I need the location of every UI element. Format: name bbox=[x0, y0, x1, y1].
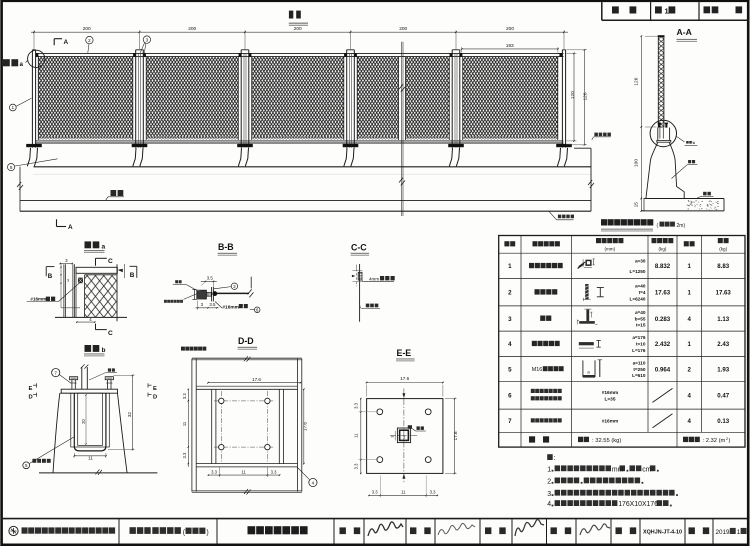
svg-text:17.63: 17.63 bbox=[716, 290, 732, 297]
svg-text:#16mm: #16mm bbox=[602, 390, 619, 396]
svg-text:2m): 2m) bbox=[677, 223, 686, 229]
svg-text:4: 4 bbox=[688, 316, 692, 323]
svg-text:1: 1 bbox=[665, 6, 669, 15]
svg-text:#16mm: #16mm bbox=[30, 297, 46, 302]
svg-text:17.6: 17.6 bbox=[302, 422, 307, 431]
svg-text:b: b bbox=[102, 347, 106, 354]
svg-text:A-A: A-A bbox=[677, 27, 692, 37]
svg-text:126: 126 bbox=[582, 92, 588, 100]
svg-text:120: 120 bbox=[570, 91, 576, 99]
svg-text:#16mm: #16mm bbox=[222, 304, 239, 310]
svg-text:t=10: t=10 bbox=[636, 342, 646, 347]
svg-text:200: 200 bbox=[188, 26, 196, 32]
svg-text:193: 193 bbox=[506, 43, 514, 49]
svg-text:200: 200 bbox=[83, 26, 91, 32]
svg-text:A: A bbox=[64, 39, 69, 46]
svg-text:11: 11 bbox=[88, 456, 93, 461]
svg-text:3.3: 3.3 bbox=[182, 393, 187, 399]
svg-text:E-E: E-E bbox=[397, 348, 412, 358]
svg-text:1: 1 bbox=[688, 341, 692, 348]
svg-text:A: A bbox=[68, 224, 73, 231]
svg-text:0.13: 0.13 bbox=[717, 418, 729, 425]
svg-text:3.3: 3.3 bbox=[353, 463, 358, 469]
svg-text:17.63: 17.63 bbox=[655, 290, 671, 297]
svg-text:b=55: b=55 bbox=[635, 316, 646, 321]
svg-text:11: 11 bbox=[353, 433, 358, 438]
svg-text:3.3: 3.3 bbox=[271, 469, 277, 474]
svg-text:D: D bbox=[153, 395, 157, 401]
svg-text:200: 200 bbox=[506, 26, 514, 32]
svg-text:2: 2 bbox=[508, 290, 512, 297]
svg-text:L=176: L=176 bbox=[632, 348, 646, 353]
svg-text:: 2.32 (m: : 2.32 (m bbox=[703, 438, 726, 444]
svg-text:a=110: a=110 bbox=[633, 360, 646, 365]
svg-text:L=35: L=35 bbox=[604, 397, 615, 403]
svg-text:t=4: t=4 bbox=[639, 290, 646, 295]
svg-text:5: 5 bbox=[508, 366, 512, 373]
svg-text:D: D bbox=[29, 395, 33, 401]
svg-text:7: 7 bbox=[508, 418, 512, 425]
svg-text:6: 6 bbox=[508, 393, 512, 400]
svg-text:t=250: t=250 bbox=[633, 367, 646, 372]
svg-text:B: B bbox=[48, 273, 53, 280]
svg-text:2: 2 bbox=[688, 366, 692, 373]
svg-text:a: a bbox=[20, 61, 24, 68]
svg-text:#16mm: #16mm bbox=[602, 419, 619, 425]
svg-text:a=40: a=40 bbox=[635, 310, 646, 315]
svg-text:4: 4 bbox=[547, 501, 551, 508]
svg-text:D-D: D-D bbox=[238, 336, 254, 346]
svg-text:32: 32 bbox=[127, 412, 132, 418]
svg-text:126: 126 bbox=[634, 77, 640, 85]
svg-text:a=30: a=30 bbox=[635, 259, 646, 264]
svg-text:3.3: 3.3 bbox=[372, 489, 378, 494]
svg-text:15: 15 bbox=[634, 202, 640, 208]
svg-text:C: C bbox=[108, 330, 113, 337]
svg-text:XQHJN-JT-4-10: XQHJN-JT-4-10 bbox=[643, 530, 682, 536]
svg-text:3.5: 3.5 bbox=[207, 275, 214, 280]
svg-text:(mm): (mm) bbox=[604, 247, 615, 252]
svg-text:(kg): (kg) bbox=[659, 247, 667, 252]
svg-text:3.3: 3.3 bbox=[430, 489, 436, 494]
svg-text:3: 3 bbox=[67, 278, 69, 282]
svg-text:L=610: L=610 bbox=[632, 373, 646, 378]
svg-text:a: a bbox=[102, 243, 106, 250]
svg-text:2019: 2019 bbox=[716, 529, 731, 536]
svg-text:t=15: t=15 bbox=[636, 323, 646, 328]
svg-text:C: C bbox=[108, 258, 113, 265]
svg-text::: : bbox=[554, 455, 556, 462]
svg-text:3.5: 3.5 bbox=[209, 302, 216, 307]
svg-text:11: 11 bbox=[241, 469, 246, 474]
svg-text:2.43: 2.43 bbox=[717, 341, 729, 348]
svg-text:8.83: 8.83 bbox=[717, 263, 729, 270]
svg-text:2: 2 bbox=[88, 38, 91, 43]
svg-text:4: 4 bbox=[312, 480, 315, 485]
svg-text:1: 1 bbox=[547, 466, 551, 473]
svg-text:0.964: 0.964 bbox=[655, 366, 671, 373]
svg-text:C-C: C-C bbox=[351, 242, 367, 252]
svg-text:17.6: 17.6 bbox=[400, 376, 409, 381]
svg-text:L=6240: L=6240 bbox=[629, 296, 645, 301]
svg-text:200: 200 bbox=[294, 26, 302, 32]
svg-text:E: E bbox=[29, 386, 33, 392]
svg-text:(kg): (kg) bbox=[719, 247, 727, 252]
svg-text:): ) bbox=[206, 530, 208, 537]
svg-text:B-B: B-B bbox=[218, 242, 234, 252]
svg-text:4: 4 bbox=[508, 341, 512, 348]
svg-text:8.832: 8.832 bbox=[655, 263, 671, 270]
svg-text:3.3: 3.3 bbox=[182, 452, 187, 458]
svg-text:17.6: 17.6 bbox=[453, 431, 458, 440]
svg-text:2: 2 bbox=[547, 479, 551, 486]
svg-text:M16: M16 bbox=[532, 367, 543, 373]
svg-text:3.3: 3.3 bbox=[353, 402, 358, 408]
svg-text:100: 100 bbox=[634, 159, 640, 167]
svg-text:3: 3 bbox=[508, 316, 512, 323]
svg-text:4: 4 bbox=[688, 393, 692, 400]
svg-text:E: E bbox=[153, 386, 157, 392]
svg-text:1: 1 bbox=[688, 263, 692, 270]
svg-text:1.93: 1.93 bbox=[717, 366, 729, 373]
svg-text:B: B bbox=[130, 272, 135, 279]
svg-text:): ) bbox=[729, 438, 731, 444]
svg-text:176X10X176: 176X10X176 bbox=[618, 501, 658, 508]
svg-text:4: 4 bbox=[688, 418, 692, 425]
svg-text:4mm: 4mm bbox=[369, 277, 379, 282]
svg-text:L=1250: L=1250 bbox=[629, 269, 645, 274]
svg-text:2.432: 2.432 bbox=[655, 341, 671, 348]
svg-text:5: 5 bbox=[10, 165, 13, 170]
svg-text:1.13: 1.13 bbox=[717, 316, 729, 323]
svg-text:0.47: 0.47 bbox=[717, 393, 729, 400]
svg-text:3: 3 bbox=[547, 491, 551, 498]
svg-text:3.3: 3.3 bbox=[211, 469, 217, 474]
svg-text:7: 7 bbox=[54, 371, 57, 376]
svg-text:11: 11 bbox=[182, 421, 187, 426]
svg-text:a=176: a=176 bbox=[632, 335, 646, 340]
svg-text:200: 200 bbox=[399, 26, 407, 32]
svg-text:11: 11 bbox=[401, 489, 406, 494]
svg-text:17.6: 17.6 bbox=[252, 377, 261, 382]
svg-text:1: 1 bbox=[508, 263, 512, 270]
svg-text:0.283: 0.283 bbox=[655, 316, 671, 323]
svg-text:1: 1 bbox=[12, 105, 15, 110]
svg-text:1: 1 bbox=[688, 290, 692, 297]
svg-text:: 32.55 (kg): : 32.55 (kg) bbox=[592, 438, 621, 444]
svg-text:a=40: a=40 bbox=[635, 284, 646, 289]
svg-text:3: 3 bbox=[146, 37, 149, 42]
svg-text:20: 20 bbox=[81, 419, 86, 424]
svg-text:1: 1 bbox=[737, 529, 741, 536]
